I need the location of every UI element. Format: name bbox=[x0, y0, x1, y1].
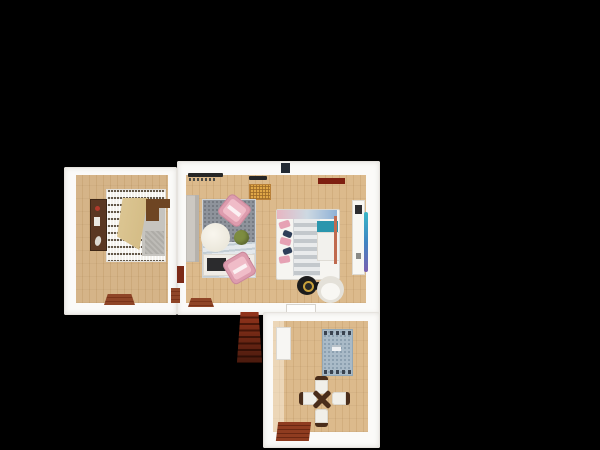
white-tub-chair bbox=[317, 276, 344, 303]
waffle-doormat bbox=[249, 184, 271, 200]
white-door-leaf bbox=[276, 327, 291, 360]
window-sill-decor bbox=[189, 178, 215, 181]
wall-mounted-item bbox=[281, 163, 290, 173]
round-white-table bbox=[201, 223, 230, 252]
bed-side-accent bbox=[334, 216, 337, 264]
bed-head-gradient bbox=[277, 210, 337, 219]
dining-chair-south bbox=[315, 409, 328, 427]
blue-fringed-rug bbox=[322, 329, 353, 376]
red-radiator bbox=[177, 266, 184, 283]
bed-headboard bbox=[146, 199, 159, 221]
green-pouf bbox=[234, 230, 249, 245]
floorplan-render bbox=[0, 0, 600, 450]
living-door-threshold bbox=[188, 298, 214, 307]
dining-entry-mat bbox=[276, 422, 311, 441]
white-tray bbox=[94, 235, 102, 246]
cabinet-dark-panel bbox=[355, 205, 362, 214]
cabinet-item bbox=[356, 253, 361, 259]
bedroom-door-threshold bbox=[104, 294, 135, 305]
staircase bbox=[237, 312, 262, 363]
rug-object bbox=[332, 345, 341, 351]
gray-wall-sofa bbox=[186, 195, 199, 262]
window-mid bbox=[249, 176, 267, 180]
white-box bbox=[94, 217, 100, 226]
door-header-red bbox=[318, 178, 345, 184]
divider-door-threshold bbox=[171, 288, 180, 303]
window-left bbox=[188, 173, 223, 177]
striped-duvet bbox=[293, 219, 320, 276]
dining-chair-east bbox=[332, 392, 350, 405]
dining-table-x-base bbox=[312, 389, 332, 409]
red-vase bbox=[95, 206, 100, 211]
sideboard-cabinet bbox=[90, 199, 107, 251]
gradient-board-art bbox=[364, 212, 368, 272]
